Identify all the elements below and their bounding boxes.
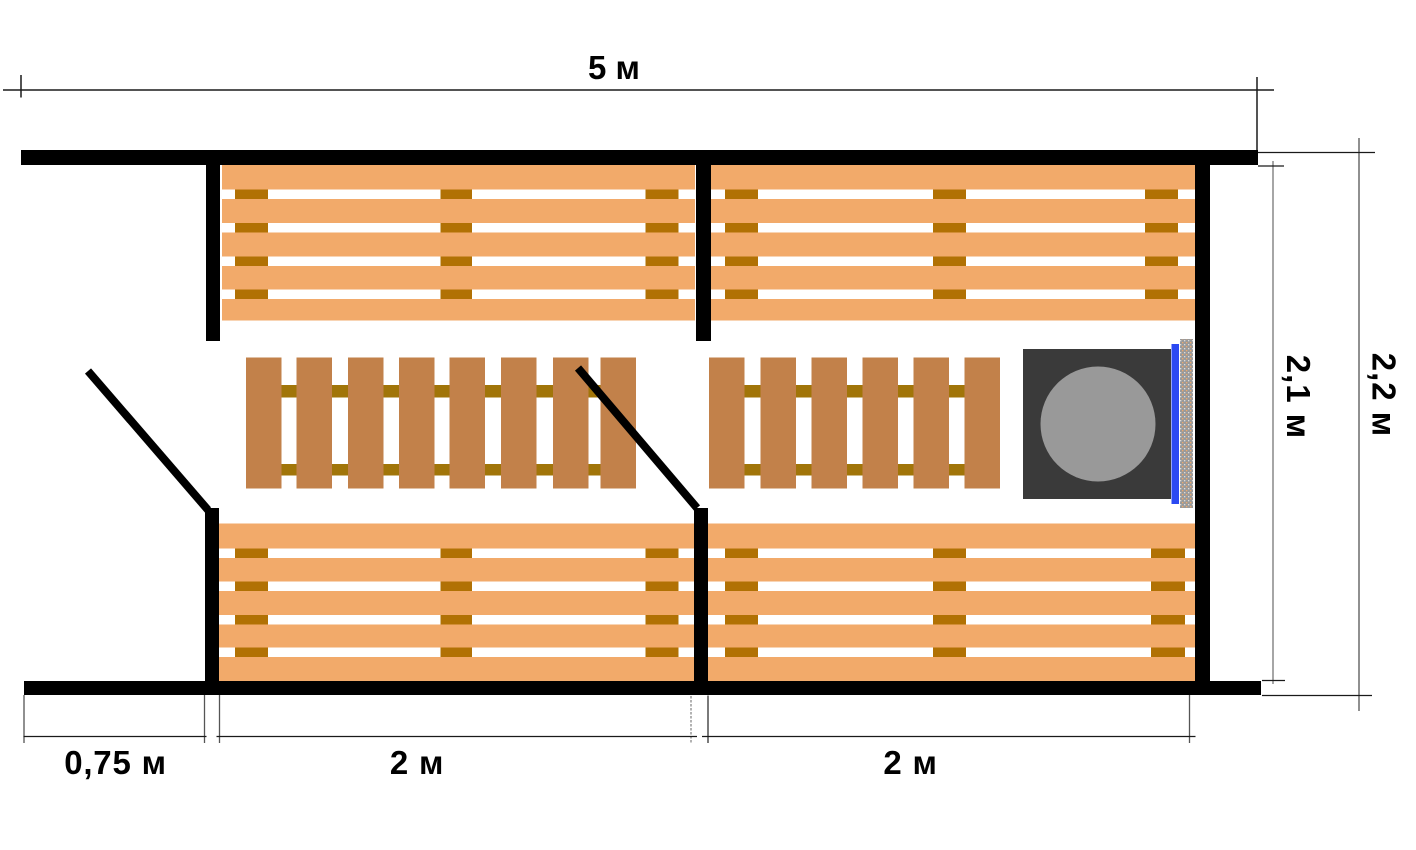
svg-text:0,75 м: 0,75 м [64,744,167,781]
svg-text:2 м: 2 м [883,744,937,781]
svg-text:2,2 м: 2,2 м [1366,353,1403,437]
svg-text:2 м: 2 м [390,744,444,781]
svg-text:5 м: 5 м [588,49,640,86]
svg-text:2,1 м: 2,1 м [1280,355,1317,439]
